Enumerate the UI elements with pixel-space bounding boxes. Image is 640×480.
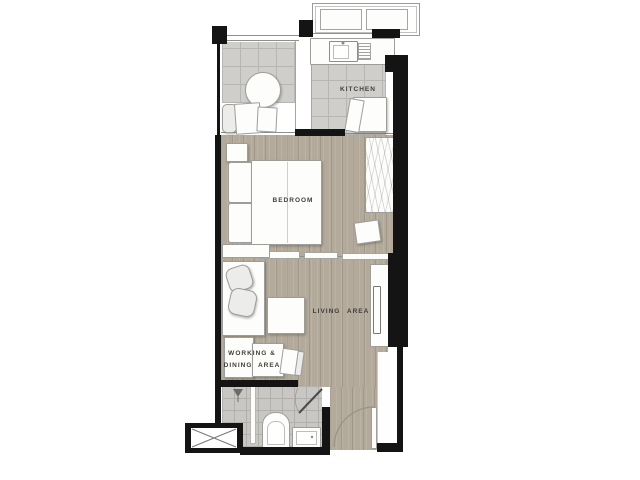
balcony-sliding-door xyxy=(227,35,299,41)
wall-left-balcony xyxy=(217,42,220,135)
entry-corridor-floor xyxy=(330,387,377,450)
wall-balcony-kitchen-divider xyxy=(295,129,345,136)
wardrobe xyxy=(365,137,395,213)
bedroom-label: BEDROOM xyxy=(273,196,314,206)
floor-plan: KITCHEN BEDROOM LIVING AREA WORKING & DI… xyxy=(0,0,640,480)
living-area-label: LIVING AREA xyxy=(313,307,370,317)
toilet xyxy=(262,412,290,450)
tv xyxy=(373,286,381,334)
bath-door-threshold xyxy=(322,387,330,407)
basin xyxy=(296,431,317,445)
wall-right-pillar xyxy=(385,55,408,72)
side-table xyxy=(354,219,382,244)
wall-top-center-pillar xyxy=(299,20,313,37)
working-dining-label-line1: WORKING & xyxy=(228,349,276,359)
shower-screen xyxy=(250,386,256,444)
nightstand xyxy=(226,143,248,162)
ac-unit xyxy=(320,9,362,30)
wall-right-lower xyxy=(397,347,403,445)
wall-bath-bottom xyxy=(240,447,330,455)
wall-bottom-right-corner xyxy=(377,443,403,452)
sliding-panel xyxy=(304,252,338,259)
entry-niche xyxy=(377,352,398,443)
wall-top-right xyxy=(372,29,400,38)
condenser-unit-box xyxy=(185,423,243,453)
washbasin xyxy=(292,427,321,449)
kitchen-bedroom-line xyxy=(345,133,393,134)
kitchen-sink xyxy=(329,41,358,62)
wall-right-main xyxy=(393,72,408,257)
kitchen-label: KITCHEN xyxy=(340,85,376,95)
sliding-panel xyxy=(342,253,390,260)
condenser-unit xyxy=(191,428,237,448)
wall-bath-right xyxy=(322,407,330,447)
wall-bath-top xyxy=(215,380,298,387)
foot-bench xyxy=(222,244,270,258)
wall-right-living xyxy=(388,253,408,347)
sink-basin xyxy=(333,45,349,59)
coffee-table xyxy=(267,297,305,334)
toilet-bowl xyxy=(267,421,285,445)
drainboard xyxy=(358,43,371,60)
ac-unit xyxy=(366,9,408,30)
working-dining-label-line2: DINING AREA xyxy=(224,361,281,371)
lounge-chair-seat xyxy=(256,106,277,132)
